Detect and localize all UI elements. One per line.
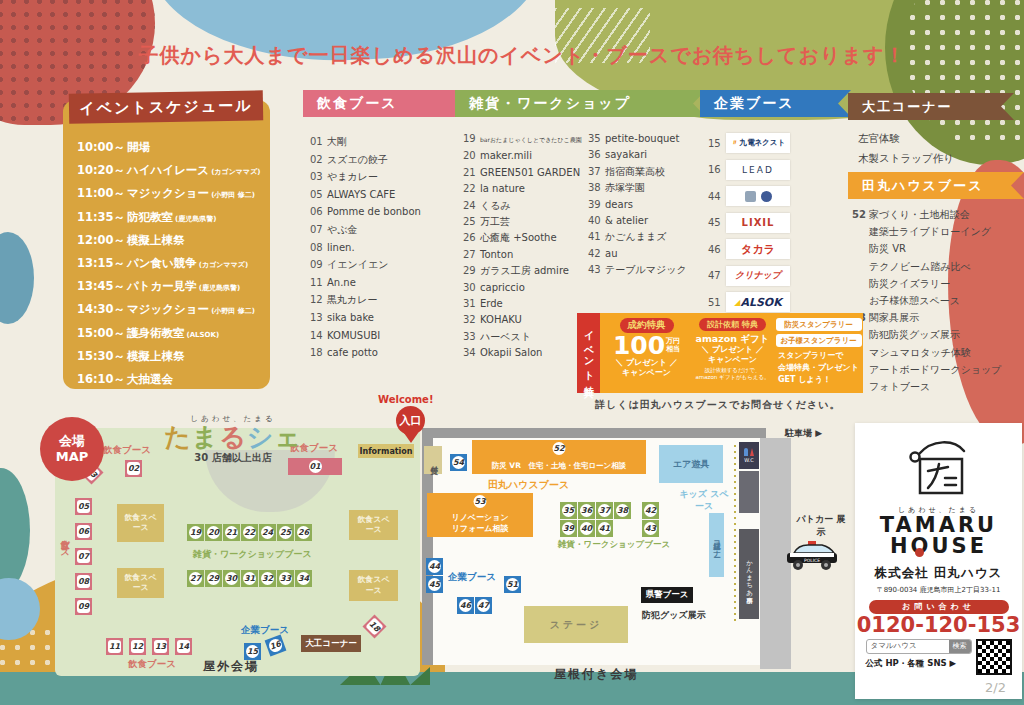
corporate-row: 51 ALSOK	[708, 289, 790, 316]
map-booth: 19	[187, 524, 204, 541]
map-booth: 14	[175, 638, 192, 655]
contract-line1: ＼ プレゼント ／	[615, 358, 678, 368]
schedule-row: 11:35～ 防犯教室 (鹿児島県警)	[77, 210, 262, 225]
list-item: 13 sika bake	[310, 309, 421, 327]
map-booth: 25	[277, 524, 294, 541]
tamaru-booth-ribbon: 田丸ハウスブース	[848, 172, 1024, 199]
list-item: 35 petite-bouquet	[588, 131, 696, 147]
carpenter-corner-box: 大工コーナー	[301, 635, 361, 652]
map-booth: 30	[223, 570, 240, 587]
schedule-row: 15:00～ 護身術教室 (ALSOK)	[77, 326, 262, 341]
corporate-row: 44	[708, 183, 790, 210]
contract-benefit: 成約特典 100 万円 相当 ＼ プレゼント ／ キャンペーン	[606, 318, 687, 389]
kanmachi-office: かんまちあ事務所	[739, 529, 759, 619]
benefits-body: 成約特典 100 万円 相当 ＼ プレゼント ／ キャンペーン 設計依頼 特典 …	[600, 313, 863, 393]
design-benefit: 設計依頼 特典 amazon ギフト ＼ プレゼント ／ キャンペーン 設計依頼…	[692, 318, 773, 389]
list-item: 25 万工芸	[463, 214, 585, 230]
information-desk: Information	[358, 444, 414, 458]
map-booth: 02	[125, 460, 142, 477]
air-playground: エア遊具	[659, 445, 723, 483]
map-booth: 40	[578, 520, 595, 537]
map-booth: 24	[259, 524, 276, 541]
tamaru-booth-list: 52 家づくり・土地相談会 建築士ライブドローイング 防災 VR テクノビーム踏…	[852, 206, 1001, 395]
list-item: 03 やまカレー	[310, 168, 421, 186]
map-booth: 11	[106, 638, 123, 655]
list-item: 30 capriccio	[463, 280, 585, 296]
list-item: 防災 VR	[852, 240, 1001, 257]
police-car-icon: POLICE	[783, 540, 841, 576]
map-booth: 09	[75, 598, 92, 615]
list-item: 防犯防災グッズ展示	[852, 326, 1001, 343]
company-logo: タカラ	[726, 239, 790, 259]
list-item: 06 Pomme de bonbon	[310, 203, 421, 221]
schedule-row: 16:10～ 大抽選会	[77, 372, 262, 387]
restroom-icons	[744, 448, 754, 456]
list-item: 20 maker.mili	[463, 148, 585, 164]
phone-number: 0120-120-153	[857, 614, 1021, 637]
food-space: 飲食スペース	[117, 504, 164, 542]
contract-line2: キャンペーン	[622, 368, 671, 378]
map-booth: 42	[642, 502, 659, 519]
list-item: 43 テーブルマジック	[588, 262, 696, 278]
list-item: 14 KOMUSUBI	[310, 327, 421, 345]
corporate-ribbon: 企業ブース	[700, 90, 851, 117]
parking-label: 駐車場 ▶	[785, 427, 822, 440]
benefits-footer: 詳しくは田丸ハウスブースでお問合せください。	[595, 398, 841, 412]
list-item: アートボードワークショップ	[852, 361, 1001, 378]
food-booth-list: 01 大剛 02 スズエの餃子 03 やまカレー 05 ALWAYS CAFE …	[310, 133, 421, 362]
map-booth: 18	[362, 614, 386, 638]
list-item: 37 指宿商業高校	[588, 164, 696, 180]
svg-text:POLICE: POLICE	[804, 558, 820, 563]
map-booth: 13	[152, 638, 169, 655]
list-item: 52 家づくり・土地相談会	[852, 206, 1001, 223]
list-item: 24 くるみ	[463, 198, 585, 214]
list-item: 39 dears	[588, 197, 696, 213]
map-booth: 36	[578, 502, 595, 519]
workshop-list-col1: 19 barおたまじゃくしとできたひこ農園 20 maker.mili 21 G…	[463, 131, 585, 362]
workshop-list-col2: 35 petite-bouquet 36 sayakari 37 指宿商業高校 …	[588, 131, 696, 279]
tamaru-booth-52: 52 防災 VR 住宅・土地・住宅ローン相談	[472, 440, 646, 474]
map-booth: 31	[241, 570, 258, 587]
ennichi-corner: 縁日コーナー	[709, 513, 724, 577]
list-item: 38 赤塚学園	[588, 180, 696, 196]
sns-label: 公式 HP・各種 SNS ▶	[866, 658, 972, 670]
company-logo: クリナップ	[726, 266, 790, 286]
police-booth: 県警ブース	[641, 587, 693, 603]
corporate-row: 47 クリナップ	[708, 263, 790, 290]
schedule-row: 14:30～ マジックショー (小野田 修二)	[77, 302, 262, 317]
page-title: 子供から大人まで一日楽しめる沢山のイベント・ブースでお待ちしております！	[40, 42, 1004, 69]
corporate-label: 企業ブース	[241, 624, 289, 637]
map-booth: 08	[75, 573, 92, 590]
food-booth-row: 11121314	[106, 638, 192, 655]
qr-code	[976, 639, 1012, 675]
wall	[422, 428, 766, 438]
carpenter-list: 左官体験 木製ストラップ作り	[858, 128, 954, 168]
design-note: 設計依頼するだけで、 amazon ギフトがもらえる。	[695, 367, 769, 381]
food-label: 飲食ブース	[128, 658, 176, 671]
decor-teal-left2	[0, 468, 30, 593]
map-booth: 20	[205, 524, 222, 541]
page-number: 2/2	[985, 680, 1006, 695]
list-item: 26 心癒庵 +Soothe	[463, 230, 585, 246]
list-item: 42 au	[588, 246, 696, 262]
schedule-row: 13:15～ パン食い競争 (カゴンママズ)	[77, 256, 262, 271]
list-item: 40 & atelier	[588, 213, 696, 229]
list-item: 33 ハーベスト	[463, 329, 585, 345]
event-schedule-list: 10:00～ 開場 10:20～ ハイハイレース (カゴンママズ) 11:00～…	[63, 100, 270, 387]
food-booth-column: 0506070809	[75, 498, 92, 615]
food-space: 飲食スペース	[349, 510, 398, 540]
list-item: 34 Okapii Salon	[463, 345, 585, 361]
list-item: 22 la nature	[463, 181, 585, 197]
stage: ステージ	[524, 606, 628, 643]
stamp-text: スタンプラリーで 会場特典・プレゼント GET しよう！	[778, 350, 859, 386]
contract-units: 万円 相当	[666, 338, 680, 353]
list-item: 08 linen.	[310, 239, 421, 257]
map-booth: 51	[504, 576, 521, 593]
company-logo	[726, 186, 790, 206]
schedule-row: 10:00～ 開場	[77, 140, 262, 155]
company-logo: ALSOK	[726, 292, 790, 312]
corporate-label: 企業ブース	[448, 571, 496, 584]
list-item: 左官体験	[858, 128, 954, 148]
workshop-label: 雑貨・ワークショップブース	[558, 539, 670, 551]
benefits-tab: イベント特典	[577, 313, 600, 393]
map-booth: 43	[642, 520, 659, 537]
food-space: 飲食スペース	[349, 570, 398, 601]
pin-tail-icon	[404, 433, 418, 443]
schedule-row: 11:00～ マジックショー (小野田 修二)	[77, 186, 262, 201]
schedule-row: 12:00～ 模擬上棟祭	[77, 233, 262, 248]
contract-amount-row: 100 万円 相当	[613, 333, 680, 358]
entrance-pin: 入口	[396, 406, 426, 443]
company-name: 株式会社 田丸ハウス	[875, 565, 1003, 582]
workshop-label: 雑貨・ワークショップブース	[193, 548, 312, 561]
corporate-list: 15 九電ネクスト 16 LEAD 44 45 LIXIL 46 タカラ 47 …	[708, 130, 790, 342]
map-booth: 26	[295, 524, 312, 541]
map-booth: 45	[426, 576, 443, 593]
carpenter-ribbon: 大工コーナー	[848, 93, 1014, 120]
list-item: 木製ストラップ作り	[858, 148, 954, 168]
indoor-map: 受付 54 52 防災 VR 住宅・土地・住宅ローン相談 田丸ハウスブース 53…	[408, 425, 813, 687]
company-logo: LIXIL	[726, 213, 790, 233]
map-booth: 06	[75, 523, 92, 540]
design-line1: ＼ プレゼント ／	[701, 345, 764, 355]
corporate-booth-column: 4445	[426, 558, 443, 593]
outdoor-label: 屋外会場	[203, 658, 259, 675]
list-item: 18 cafe potto	[310, 344, 421, 362]
list-item: 05 ALWAYS CAFE	[310, 186, 421, 204]
design-badge: 設計依頼 特典	[699, 318, 766, 331]
list-item: 07 やぶ金	[310, 221, 421, 239]
map-booth: 05	[75, 498, 92, 515]
map-booth: 27	[187, 570, 204, 587]
map-booth: 34	[295, 570, 312, 587]
list-item: テクノビーム踏み比べ	[852, 258, 1001, 275]
workshop-booth-row: 19202122242526	[187, 524, 312, 541]
map-booth: 32	[259, 570, 276, 587]
list-item: 36 sayakari	[588, 147, 696, 163]
list-item: 31 Erde	[463, 296, 585, 312]
workshop-booth-row: 27293031323334	[187, 570, 312, 587]
tamaru-booth-53: 53 リノベーション リフォーム相談	[427, 493, 533, 537]
map-booth: 41	[596, 520, 613, 537]
tamaru-booth-label: 田丸ハウスブース	[488, 478, 569, 492]
decor-dotted-line	[734, 443, 736, 621]
welcome-label: Welcome!	[378, 394, 433, 405]
logo-house: HOUSE	[890, 536, 987, 557]
list-item: お子様休憩スペース	[852, 292, 1001, 309]
design-line2: キャンペーン	[708, 355, 757, 365]
security-goods-label: 防犯グッズ展示	[642, 609, 706, 622]
list-item: 建築士ライブドローイング	[852, 223, 1001, 240]
list-item: 11 An.ne	[310, 274, 421, 292]
workshop-booth-row: 394041	[560, 520, 613, 537]
decor-teal-left	[0, 232, 34, 324]
map-booth: 22	[241, 524, 258, 541]
corporate-row: 16 LEAD	[708, 157, 790, 184]
contract-amount: 100	[613, 333, 665, 358]
map-booth: 12	[129, 638, 146, 655]
map-booth: 29	[205, 570, 222, 587]
list-item: 19 barおたまじゃくしとできたひこ農園	[463, 131, 585, 148]
search-input[interactable]: タマルハウス	[867, 640, 949, 653]
list-item: 27 Tonton	[463, 247, 585, 263]
corporate-row: 15 九電ネクスト	[708, 130, 790, 157]
design-line0: amazon ギフト	[695, 333, 769, 345]
schedule-row: 15:30～ 模擬上棟祭	[77, 349, 262, 364]
food-space: 飲食スペース	[117, 568, 164, 598]
map-badge: 会場 MAP	[40, 417, 104, 481]
map-booth: 16	[265, 635, 287, 657]
list-item: 防災クイズラリー	[852, 275, 1001, 292]
food-label: 飲食ブース	[58, 533, 71, 553]
corporate-row: 46 タカラ	[708, 236, 790, 263]
search-box[interactable]: タマルハウス 検索	[866, 639, 972, 654]
wc-box: W.C	[739, 442, 759, 469]
map-booth: 35	[560, 502, 577, 519]
schedule-row: 10:20～ ハイハイレース (カゴンママズ)	[77, 163, 262, 178]
kids-space-label: キッズ スペース	[676, 489, 732, 512]
workshop-booth-row: 35363738	[560, 502, 631, 519]
search-area: タマルハウス 検索 公式 HP・各種 SNS ▶	[866, 639, 972, 670]
male-icon	[744, 448, 748, 456]
venue-title: しあわせ、たまる たまるシェ 30 店舗以上出店	[143, 414, 323, 465]
food-booth-ribbon: 飲食ブース	[303, 90, 469, 117]
event-benefits-banner: イベント特典 成約特典 100 万円 相当 ＼ プレゼント ／ キャンペーン 設…	[577, 313, 855, 393]
outdoor-map: しあわせ、たまる たまるシェ 30 店舗以上出店 飲食ブース 03 02 飲食ブ…	[55, 428, 420, 676]
tamaru-house-logo	[906, 435, 972, 501]
list-item: 41 かごんままズ	[588, 229, 696, 245]
list-item: マシュマロタッチ体験	[852, 344, 1001, 361]
map-booth: 33	[277, 570, 294, 587]
map-booth: 47	[475, 597, 492, 614]
stamp-rally: 防災スタンプラリー お子様スタンプラリー スタンプラリーで 会場特典・プレゼント…	[778, 318, 859, 389]
indoor-label: 屋根付き会場	[554, 666, 638, 683]
map-booth: 37	[596, 502, 613, 519]
map-booth: 46	[457, 597, 474, 614]
map-booth: 21	[223, 524, 240, 541]
schedule-row: 13:45～ パトカー見学 (鹿児島県警)	[77, 279, 262, 294]
list-item: 12 黒丸カレー	[310, 291, 421, 309]
corporate-booth-row: 4647	[457, 597, 492, 614]
female-icon	[750, 448, 754, 456]
map-booth: 54	[450, 454, 467, 471]
contact-label: お問い合わせ	[869, 600, 1009, 614]
map-booth: 44	[426, 558, 443, 575]
map-booth: 07	[75, 548, 92, 565]
map-booth: 39	[560, 520, 577, 537]
list-item: フォトブース	[852, 378, 1001, 395]
workshop-ribbon: 雑貨・ワークショップ	[455, 90, 706, 117]
list-item: 09 イエンイエン	[310, 256, 421, 274]
event-schedule-panel: イベントスケジュール 10:00～ 開場 10:20～ ハイハイレース (カゴン…	[63, 100, 270, 389]
list-item: 01 大剛	[310, 133, 421, 151]
stamp-box1: 防災スタンプラリー	[776, 318, 862, 331]
reception-desk: 受付	[424, 446, 442, 474]
search-button[interactable]: 検索	[949, 640, 971, 653]
map-booth: 38	[614, 502, 631, 519]
company-address: 〒890-0034 鹿児島市田上2丁目33-11	[877, 585, 1001, 595]
company-logo: 九電ネクスト	[726, 133, 790, 153]
list-item: 29 ガラス工房 admire	[463, 263, 585, 279]
stamp-box2: お子様スタンプラリー	[776, 334, 862, 347]
company-logo: LEAD	[726, 160, 790, 180]
list-item: 32 KOHAKU	[463, 312, 585, 328]
list-item: 21 GREEN501 GARDEN	[463, 165, 585, 181]
logo-tamaru: TAMARU	[880, 515, 997, 536]
corporate-row: 45 LIXIL	[708, 210, 790, 237]
list-item: 02 スズエの餃子	[310, 151, 421, 169]
event-schedule-title: イベントスケジュール	[69, 90, 263, 123]
list-item: 53 関家具展示	[852, 309, 1001, 326]
wall-block	[739, 471, 759, 513]
company-card: しあわせ、たまる TAMARU HOUSE 株式会社 田丸ハウス 〒890-00…	[855, 423, 1022, 699]
venue-title-text: たまるシェ	[143, 424, 323, 451]
patrol-car-label: パトカー 展示	[795, 513, 847, 539]
